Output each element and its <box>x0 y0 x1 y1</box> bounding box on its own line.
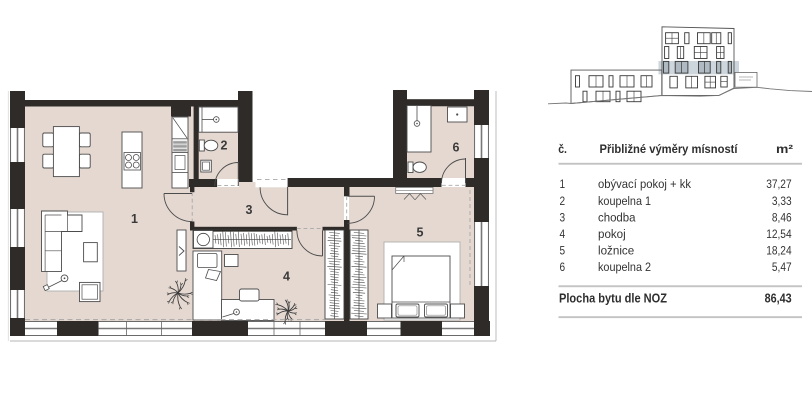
svg-text:Přibližné výměry mísností: Přibližné výměry mísností <box>600 142 739 156</box>
svg-text:1: 1 <box>131 212 138 226</box>
svg-text:4: 4 <box>560 227 566 241</box>
svg-text:1: 1 <box>560 177 566 191</box>
svg-text:37,27: 37,27 <box>766 177 792 191</box>
svg-text:6: 6 <box>453 141 460 155</box>
svg-text:2: 2 <box>560 194 566 208</box>
svg-text:ložnice: ložnice <box>598 244 634 258</box>
svg-text:86,43: 86,43 <box>765 291 792 306</box>
svg-text:5: 5 <box>417 226 424 240</box>
svg-text:Plocha bytu dle NOZ: Plocha bytu dle NOZ <box>559 291 667 306</box>
svg-text:pokoj: pokoj <box>598 227 626 241</box>
svg-text:koupelna 2: koupelna 2 <box>598 260 651 274</box>
svg-text:č.: č. <box>558 142 567 156</box>
svg-text:3: 3 <box>246 203 253 217</box>
svg-text:6: 6 <box>560 260 566 274</box>
svg-text:obývací pokoj + kk: obývací pokoj + kk <box>598 177 692 191</box>
svg-text:18,24: 18,24 <box>766 244 792 258</box>
svg-text:3,33: 3,33 <box>772 194 792 208</box>
svg-text:3: 3 <box>560 210 566 224</box>
svg-text:chodba: chodba <box>598 210 636 224</box>
svg-text:m²: m² <box>776 142 793 156</box>
svg-text:koupelna 1: koupelna 1 <box>598 194 651 208</box>
svg-text:12,54: 12,54 <box>766 227 792 241</box>
svg-text:8,46: 8,46 <box>772 210 792 224</box>
svg-text:2: 2 <box>221 139 228 153</box>
svg-text:4: 4 <box>283 270 290 284</box>
svg-text:5,47: 5,47 <box>772 260 792 274</box>
svg-text:5: 5 <box>560 244 566 258</box>
